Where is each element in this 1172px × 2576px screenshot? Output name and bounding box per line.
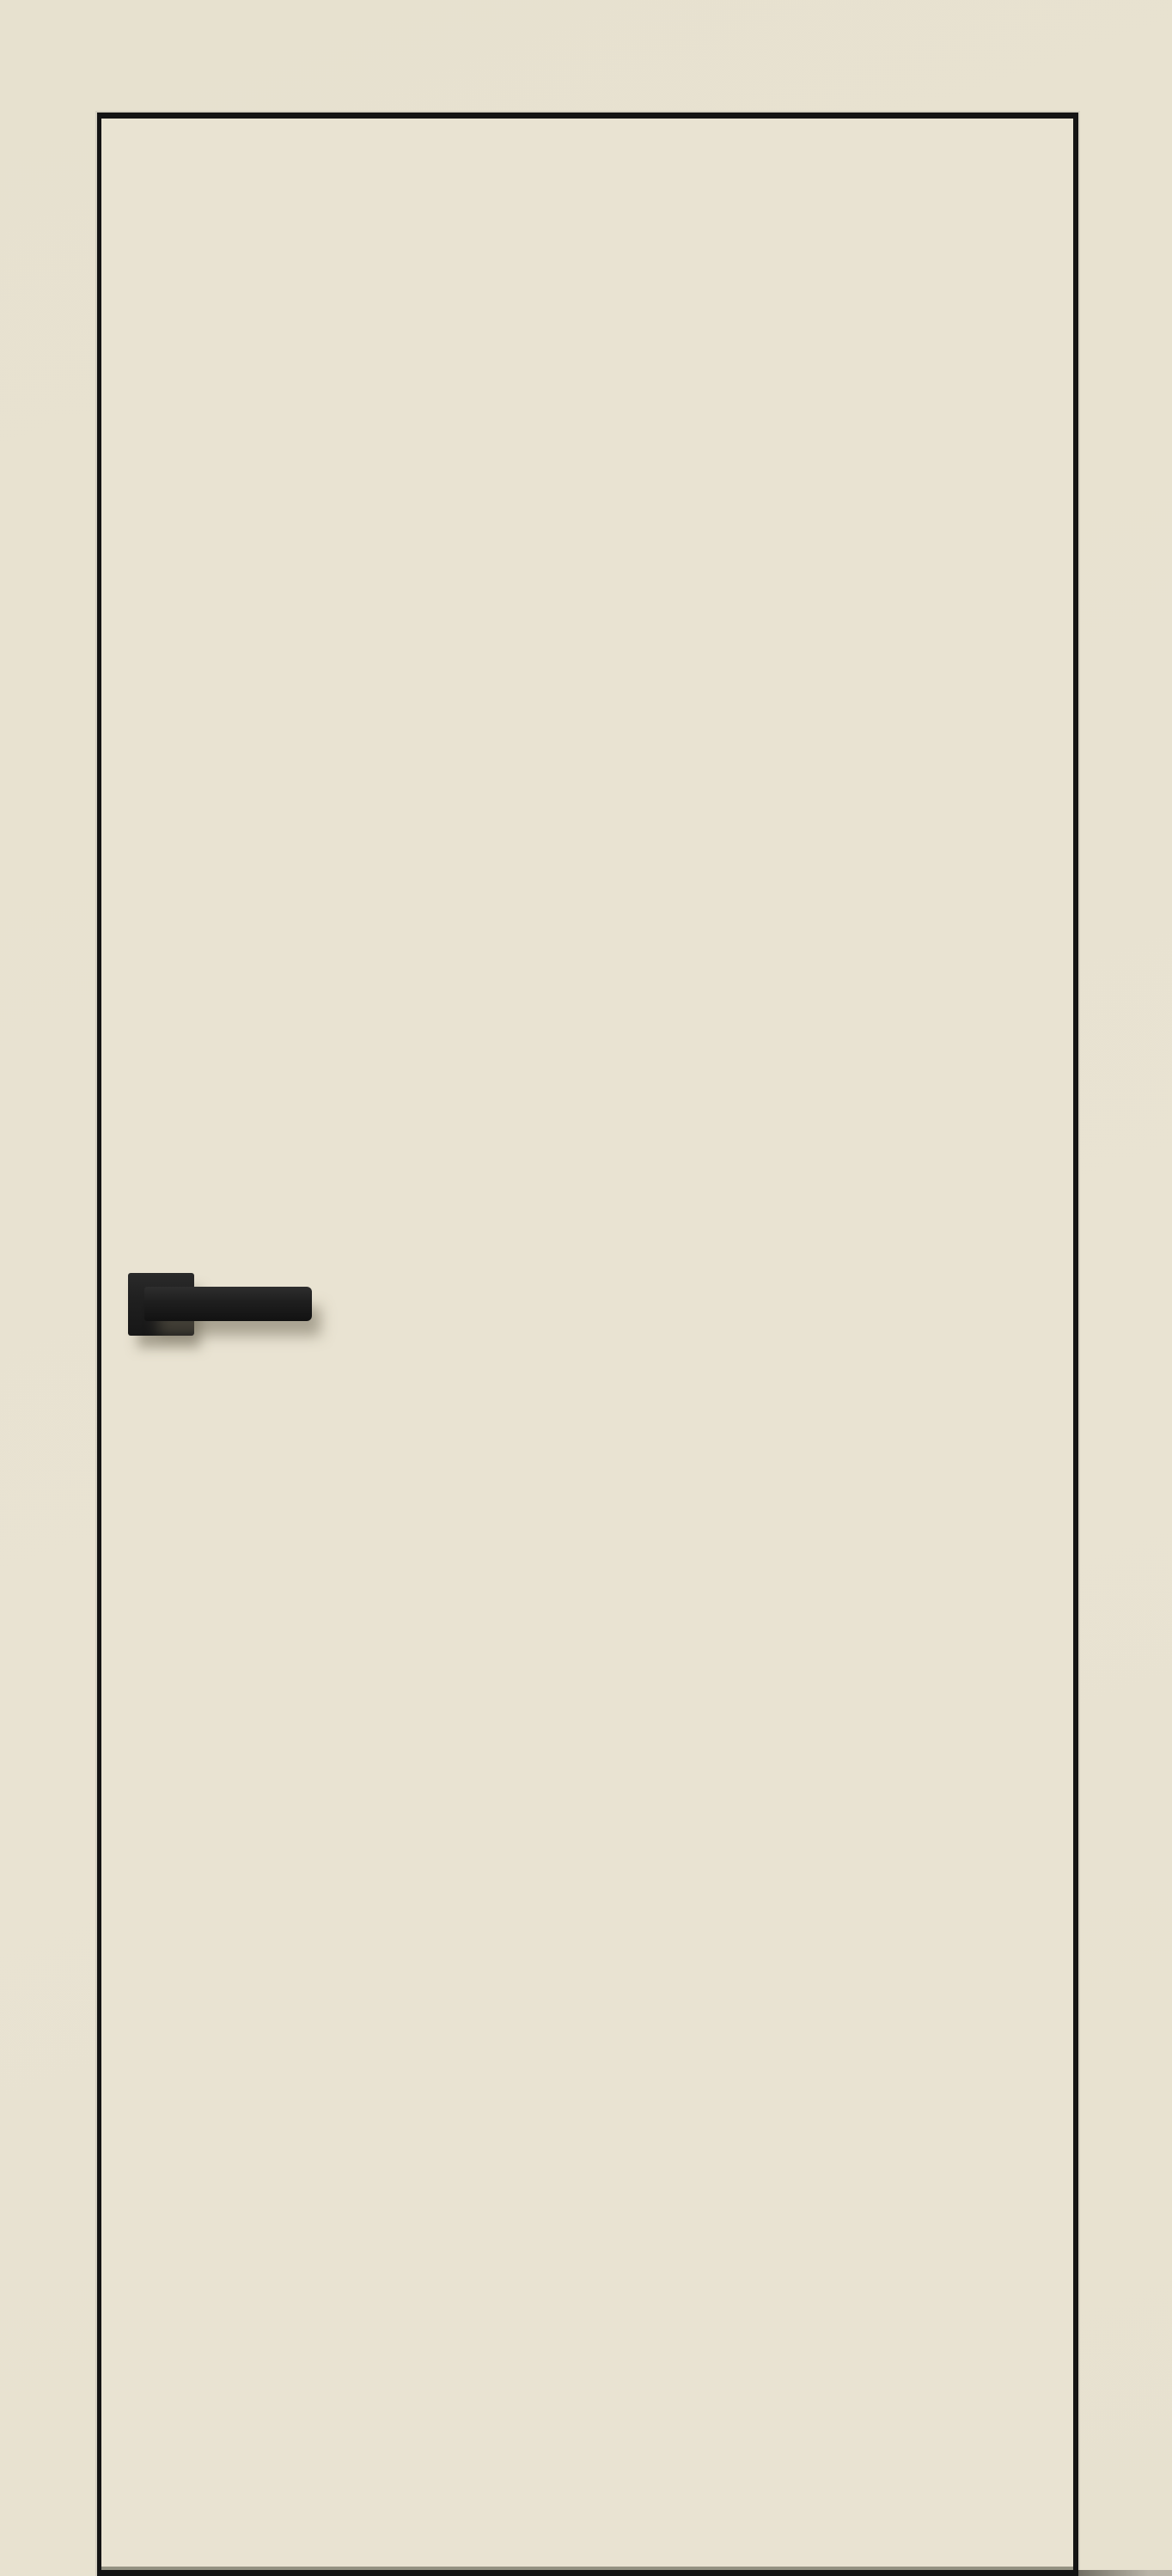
door-handle-lever xyxy=(144,1287,312,1321)
floor-shadow-line xyxy=(1078,2570,1172,2576)
door-bottom-gap-shadow xyxy=(101,2567,1073,2570)
product-image xyxy=(0,0,1172,2576)
door-leaf xyxy=(97,113,1078,2576)
